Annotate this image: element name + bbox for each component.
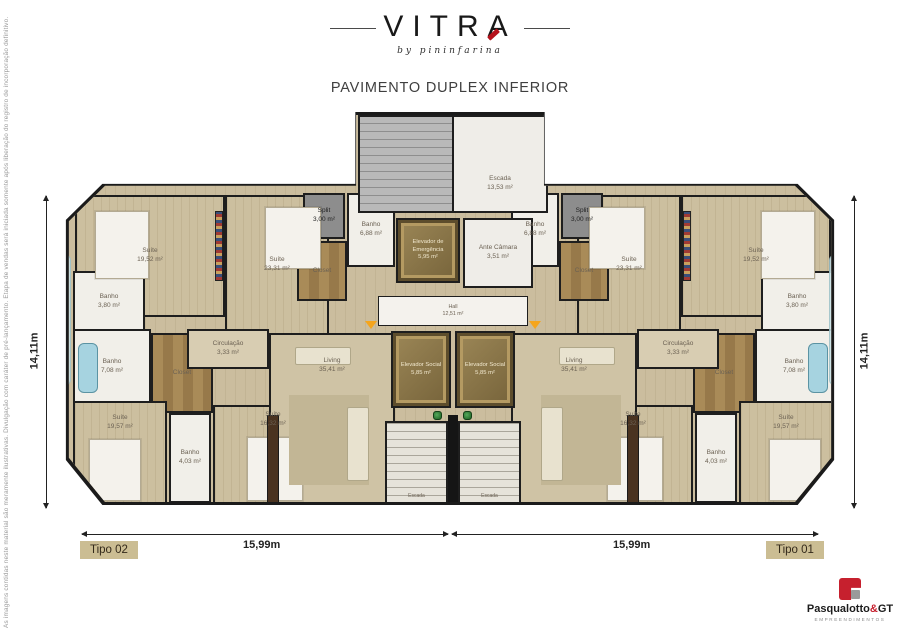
room-name: Escada — [408, 493, 425, 500]
room-name: Banho — [783, 358, 805, 367]
vitra-logo: VITRA by pininfarina — [0, 12, 900, 56]
room-banho: Banho4,03 m² — [169, 413, 211, 503]
arrow-icon — [451, 531, 457, 537]
arrow-icon — [813, 531, 819, 537]
dimension-height-right: 14,11m — [858, 333, 870, 370]
room-area: 4,03 m² — [705, 458, 727, 467]
hall-arrow-icon — [365, 321, 377, 329]
room-name: Closet — [313, 267, 331, 276]
bed-icon — [95, 211, 149, 279]
room-area: 16,32 m² — [620, 420, 646, 429]
room-area: 19,57 m² — [107, 423, 133, 432]
room-area: 6,88 m² — [360, 230, 382, 239]
room-name: Living — [561, 357, 587, 366]
sofa-icon — [347, 407, 369, 481]
room-name: Banho — [98, 293, 120, 302]
room-area: 19,52 m² — [137, 256, 163, 265]
room-escada-core: Escada13,53 m² — [452, 115, 548, 213]
room-name: Escada — [487, 175, 513, 184]
room-name: Banho — [101, 358, 123, 367]
room-area: 3,51 m² — [479, 253, 517, 262]
room-name: Suíte — [616, 256, 642, 265]
room-elevador-social: Elevador Social5,85 m² — [455, 331, 515, 408]
bed-icon — [89, 439, 141, 501]
room-area: 19,57 m² — [773, 423, 799, 432]
vitra-logo-text: VITRA — [0, 12, 900, 42]
room-area: 12,51 m² — [443, 311, 464, 318]
dimension-height-left: 14,11m — [28, 333, 40, 370]
room-name: Circulação — [213, 340, 244, 349]
room-living: Living35,41 m² — [511, 333, 637, 509]
room-area: 35,41 m² — [319, 366, 345, 375]
room-area: 7,08 m² — [783, 367, 805, 376]
room-escada: Escada — [458, 421, 521, 505]
logo-rule-right — [524, 28, 570, 29]
room-name: Banho — [179, 449, 201, 458]
room-banho: Banho3,80 m² — [73, 271, 145, 333]
sofa-icon — [541, 407, 563, 481]
room-banho: Banho3,80 m² — [761, 271, 833, 333]
room-name: Suíte — [107, 414, 133, 423]
arrow-icon — [43, 503, 49, 509]
room-area: 3,00 m² — [313, 216, 335, 225]
plant-icon — [463, 411, 472, 420]
room-suite: Suíte19,57 m² — [739, 401, 833, 507]
room-area: 5,85 m² — [401, 370, 441, 378]
room-name: Elevador Social — [465, 362, 505, 370]
room-name: Circulação — [663, 340, 694, 349]
brand-gt: GT — [878, 603, 893, 615]
logo-gray-shape — [851, 590, 860, 599]
brand-main: Pasqualotto — [807, 603, 870, 615]
room-area: 23,31 m² — [264, 265, 290, 274]
wardrobe-icon — [215, 211, 223, 281]
rooms-layer: Suíte19,52 m² Suíte23,31 m² Split3,00 m²… — [65, 115, 835, 504]
room-area: 5,95 m² — [398, 254, 458, 262]
floor-plan: Suíte19,52 m² Suíte23,31 m² Split3,00 m²… — [62, 112, 838, 507]
room-name: Split — [571, 207, 593, 216]
dimension-line-right — [854, 196, 855, 508]
room-name: Closet — [715, 369, 733, 378]
plant-icon — [433, 411, 442, 420]
arrow-icon — [851, 195, 857, 201]
dimension-width-left: 15,99m — [243, 539, 280, 551]
room-name: Elevador Social — [401, 362, 441, 370]
unit-label-tipo-02: Tipo 02 — [80, 541, 138, 559]
arrow-icon — [43, 195, 49, 201]
room-name: Closet — [575, 267, 593, 276]
arrow-icon — [443, 531, 449, 537]
room-area: 3,80 m² — [98, 302, 120, 311]
room-elevador-social: Elevador Social5,85 m² — [391, 331, 451, 408]
room-area: 23,31 m² — [616, 265, 642, 274]
room-area: 3,00 m² — [571, 216, 593, 225]
room-name: Suíte — [264, 256, 290, 265]
bathtub-icon — [78, 343, 98, 393]
bathtub-icon — [808, 343, 828, 393]
room-suite: Suíte19,57 m² — [73, 401, 167, 507]
room-elevador-emergencia: Elevador de Emergência5,95 m² — [396, 218, 460, 283]
hall-arrow-icon — [529, 321, 541, 329]
pasqualotto-logo-icon — [839, 578, 861, 600]
page: VITRA by pininfarina PAVIMENTO DUPLEX IN… — [0, 0, 900, 636]
room-area: 16,32 m² — [260, 420, 286, 429]
bed-icon — [761, 211, 815, 279]
room-ante-camara: Ante Câmara3,51 m² — [463, 218, 533, 288]
tower-stairs — [358, 115, 454, 213]
room-banho: Banho4,03 m² — [695, 413, 737, 503]
room-name: Escada — [481, 493, 498, 500]
stair-divider-wall — [448, 415, 458, 507]
page-title: PAVIMENTO DUPLEX INFERIOR — [0, 80, 900, 96]
room-name: Hall — [443, 304, 464, 311]
room-name: Suíte — [137, 247, 163, 256]
room-name: Banho — [360, 221, 382, 230]
room-name: Elevador de Emergência — [398, 239, 458, 255]
developer-logo: Pasqualotto&GT EMPREENDIMENTOS — [803, 578, 897, 622]
legal-disclaimer: As imagens contidas neste material são m… — [3, 14, 15, 628]
room-area: 13,53 m² — [487, 184, 513, 193]
room-escada: Escada — [385, 421, 448, 505]
dimension-line-left — [46, 196, 47, 508]
room-area: 5,85 m² — [465, 370, 505, 378]
room-banho: Banho7,08 m² — [73, 329, 151, 405]
room-circulacao: Circulação3,33 m² — [187, 329, 269, 369]
room-area: 7,08 m² — [101, 367, 123, 376]
room-name: Ante Câmara — [479, 244, 517, 253]
pininfarina-byline: by pininfarina — [0, 46, 900, 56]
brand-subtitle: EMPREENDIMENTOS — [803, 617, 897, 622]
room-name: Suíte — [743, 247, 769, 256]
room-area: 19,52 m² — [743, 256, 769, 265]
wardrobe-icon — [683, 211, 691, 281]
room-name: Banho — [524, 221, 546, 230]
bed-icon — [769, 439, 821, 501]
arrow-icon — [81, 531, 87, 537]
room-name: Banho — [786, 293, 808, 302]
room-area: 35,41 m² — [561, 366, 587, 375]
room-area: 3,80 m² — [786, 302, 808, 311]
room-area: 3,33 m² — [663, 349, 694, 358]
arrow-icon — [851, 503, 857, 509]
logo-rule-left — [330, 28, 376, 29]
room-name: Banho — [705, 449, 727, 458]
room-name: Suíte — [260, 411, 286, 420]
dimension-line-bottom-right — [452, 534, 818, 535]
room-area: 4,03 m² — [179, 458, 201, 467]
unit-label-tipo-01: Tipo 01 — [766, 541, 824, 559]
room-area: 6,88 m² — [524, 230, 546, 239]
room-banho: Banho7,08 m² — [755, 329, 833, 405]
dimension-width-right: 15,99m — [613, 539, 650, 551]
room-name: Closet — [173, 369, 191, 378]
room-circulacao: Circulação3,33 m² — [637, 329, 719, 369]
room-area: 3,33 m² — [213, 349, 244, 358]
brand-amp: & — [870, 603, 878, 615]
room-name: Suíte — [773, 414, 799, 423]
room-name: Suíte — [620, 411, 646, 420]
room-name: Living — [319, 357, 345, 366]
dimension-line-bottom-left — [82, 534, 448, 535]
room-name: Split — [313, 207, 335, 216]
room-hall: Hall12,51 m² — [378, 296, 528, 326]
